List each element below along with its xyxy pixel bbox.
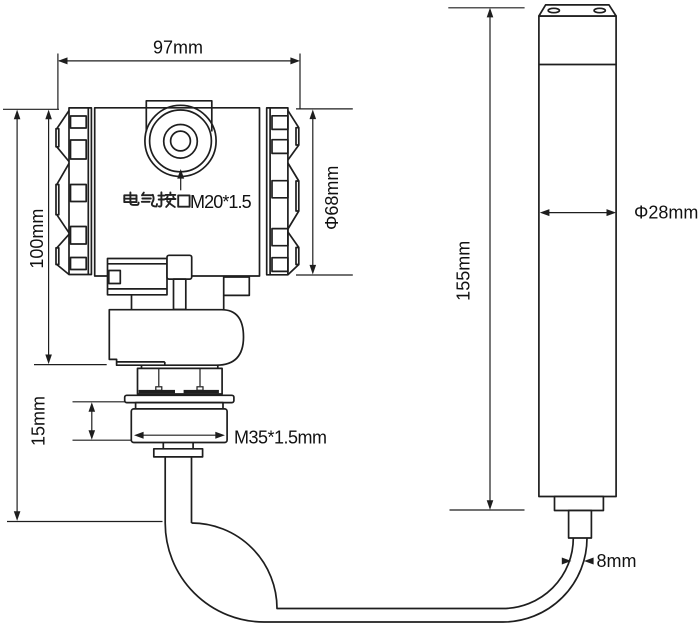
svg-text:Φ68mm: Φ68mm bbox=[322, 166, 342, 230]
svg-text:100mm: 100mm bbox=[27, 209, 47, 269]
svg-text:M35*1.5mm: M35*1.5mm bbox=[234, 428, 327, 448]
svg-text:Φ28mm: Φ28mm bbox=[634, 203, 698, 223]
svg-text:M20*1.5: M20*1.5 bbox=[190, 192, 252, 212]
svg-text:15mm: 15mm bbox=[29, 396, 49, 446]
svg-text:97mm: 97mm bbox=[153, 38, 203, 58]
svg-text:8mm: 8mm bbox=[597, 551, 637, 571]
svg-text:155mm: 155mm bbox=[454, 241, 474, 301]
